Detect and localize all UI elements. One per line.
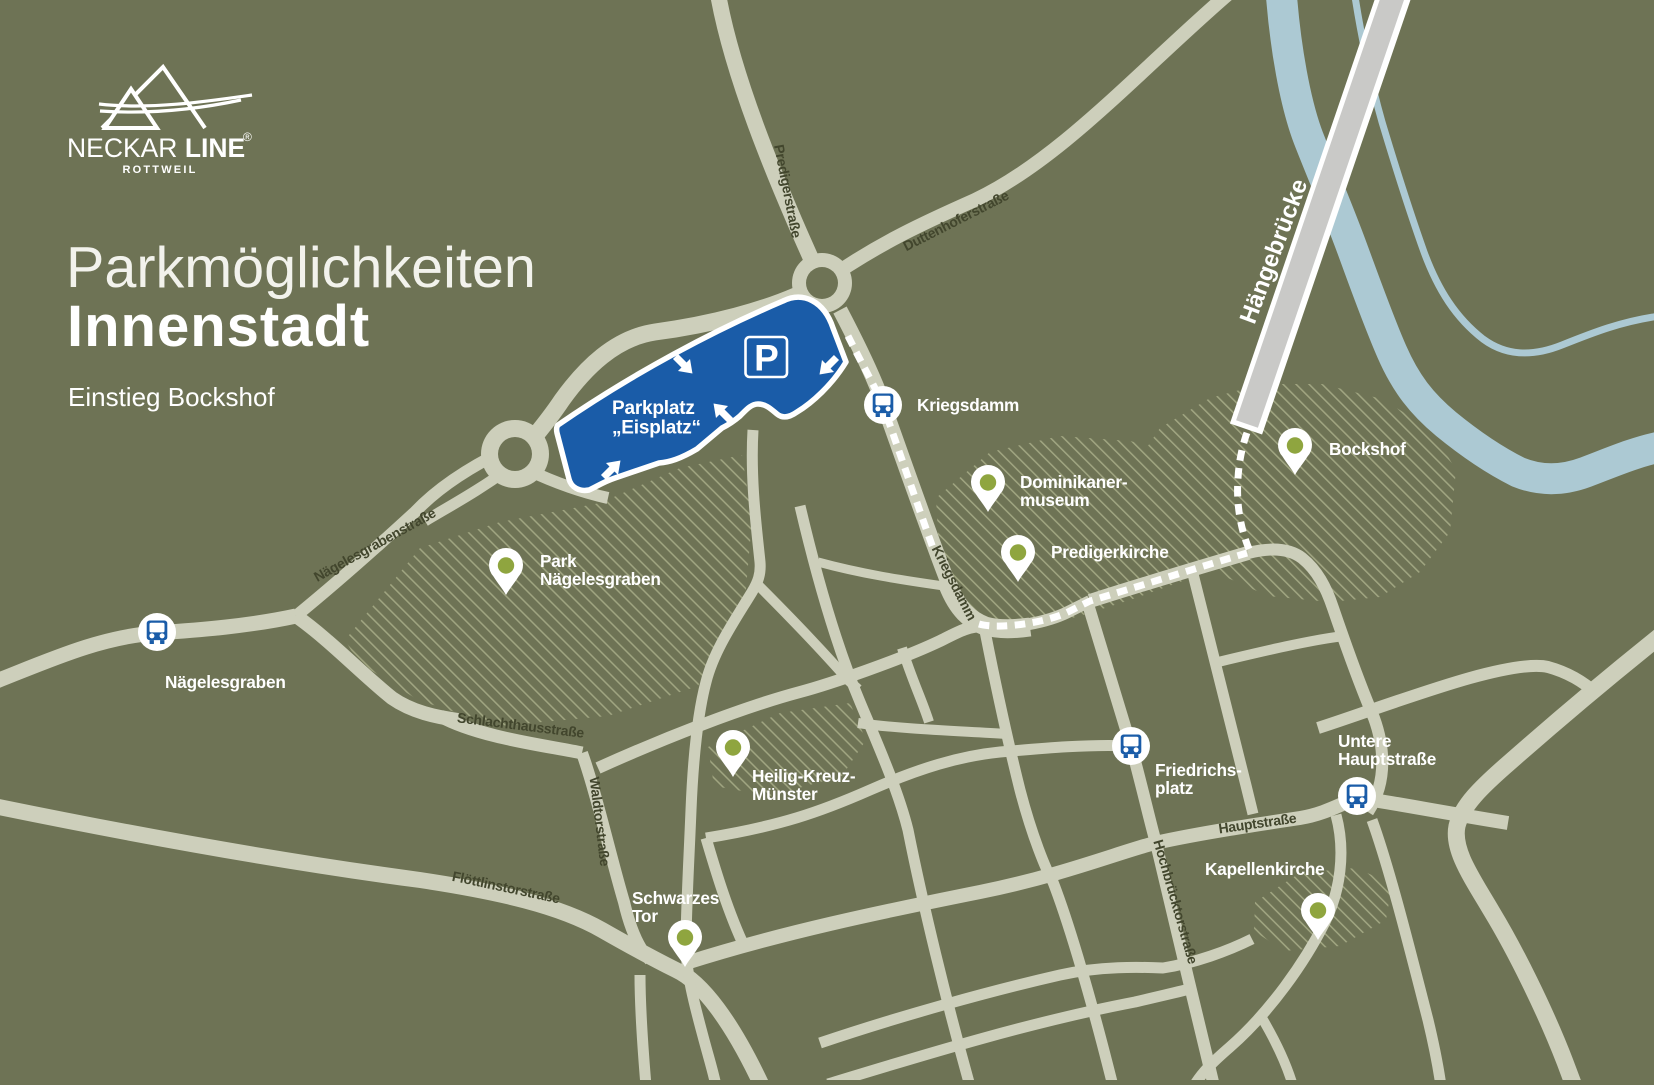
- svg-text:Parkplatz„Eisplatz“: Parkplatz„Eisplatz“: [612, 398, 701, 439]
- svg-text:NECKAR LINE: NECKAR LINE: [67, 133, 245, 163]
- svg-text:Nägelesgraben: Nägelesgraben: [165, 672, 286, 692]
- svg-text:Parkmöglichkeiten: Parkmöglichkeiten: [66, 236, 536, 300]
- svg-text:Kriegsdamm: Kriegsdamm: [917, 395, 1019, 415]
- svg-text:P: P: [754, 338, 779, 379]
- svg-text:Einstieg Bockshof: Einstieg Bockshof: [68, 382, 275, 412]
- svg-text:Innenstadt: Innenstadt: [67, 294, 370, 359]
- svg-text:Predigerkirche: Predigerkirche: [1051, 542, 1169, 562]
- svg-text:®: ®: [243, 130, 252, 144]
- svg-text:Kapellenkirche: Kapellenkirche: [1205, 859, 1324, 879]
- svg-text:ROTTWEIL: ROTTWEIL: [122, 164, 197, 176]
- svg-text:Bockshof: Bockshof: [1329, 439, 1406, 459]
